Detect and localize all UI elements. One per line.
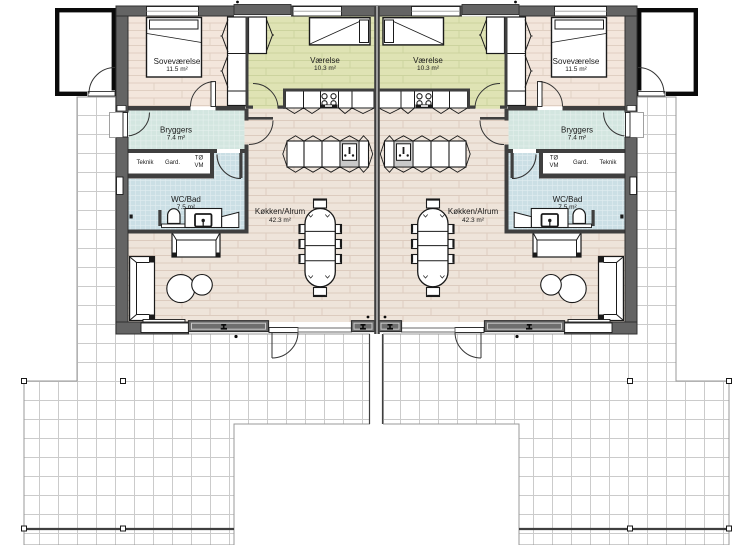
svg-text:Gard.: Gard. — [165, 160, 180, 166]
svg-text:TØ: TØ — [195, 156, 204, 162]
svg-text:Køkken/Alrum: Køkken/Alrum — [448, 207, 499, 216]
svg-text:7.4 m²: 7.4 m² — [167, 135, 186, 142]
svg-text:Værelse: Værelse — [310, 56, 340, 65]
svg-text:Værelse: Værelse — [413, 56, 443, 65]
svg-text:VM: VM — [550, 163, 559, 169]
svg-text:Bryggers: Bryggers — [561, 126, 593, 135]
svg-text:TØ: TØ — [550, 156, 559, 162]
svg-text:Teknik: Teknik — [599, 160, 617, 166]
svg-text:7.5 m²: 7.5 m² — [558, 204, 577, 211]
svg-text:Bryggers: Bryggers — [160, 126, 192, 135]
svg-text:Teknik: Teknik — [136, 160, 154, 166]
svg-text:WC/Bad: WC/Bad — [171, 195, 201, 204]
svg-text:42.3 m²: 42.3 m² — [462, 217, 485, 224]
svg-text:Gard.: Gard. — [573, 160, 588, 166]
svg-text:11.5 m²: 11.5 m² — [166, 66, 188, 73]
svg-text:Soveværelse: Soveværelse — [154, 57, 201, 66]
svg-text:Køkken/Alrum: Køkken/Alrum — [255, 207, 306, 216]
svg-text:7.5 m²: 7.5 m² — [177, 204, 196, 211]
svg-text:WC/Bad: WC/Bad — [553, 195, 583, 204]
svg-text:11.5 m²: 11.5 m² — [565, 66, 587, 73]
svg-text:10.3 m²: 10.3 m² — [314, 65, 337, 72]
svg-text:Soveværelse: Soveværelse — [553, 57, 600, 66]
svg-text:VM: VM — [195, 163, 204, 169]
svg-text:7.4 m²: 7.4 m² — [568, 135, 587, 142]
svg-text:42.3 m²: 42.3 m² — [269, 217, 292, 224]
svg-text:10.3 m²: 10.3 m² — [417, 65, 440, 72]
